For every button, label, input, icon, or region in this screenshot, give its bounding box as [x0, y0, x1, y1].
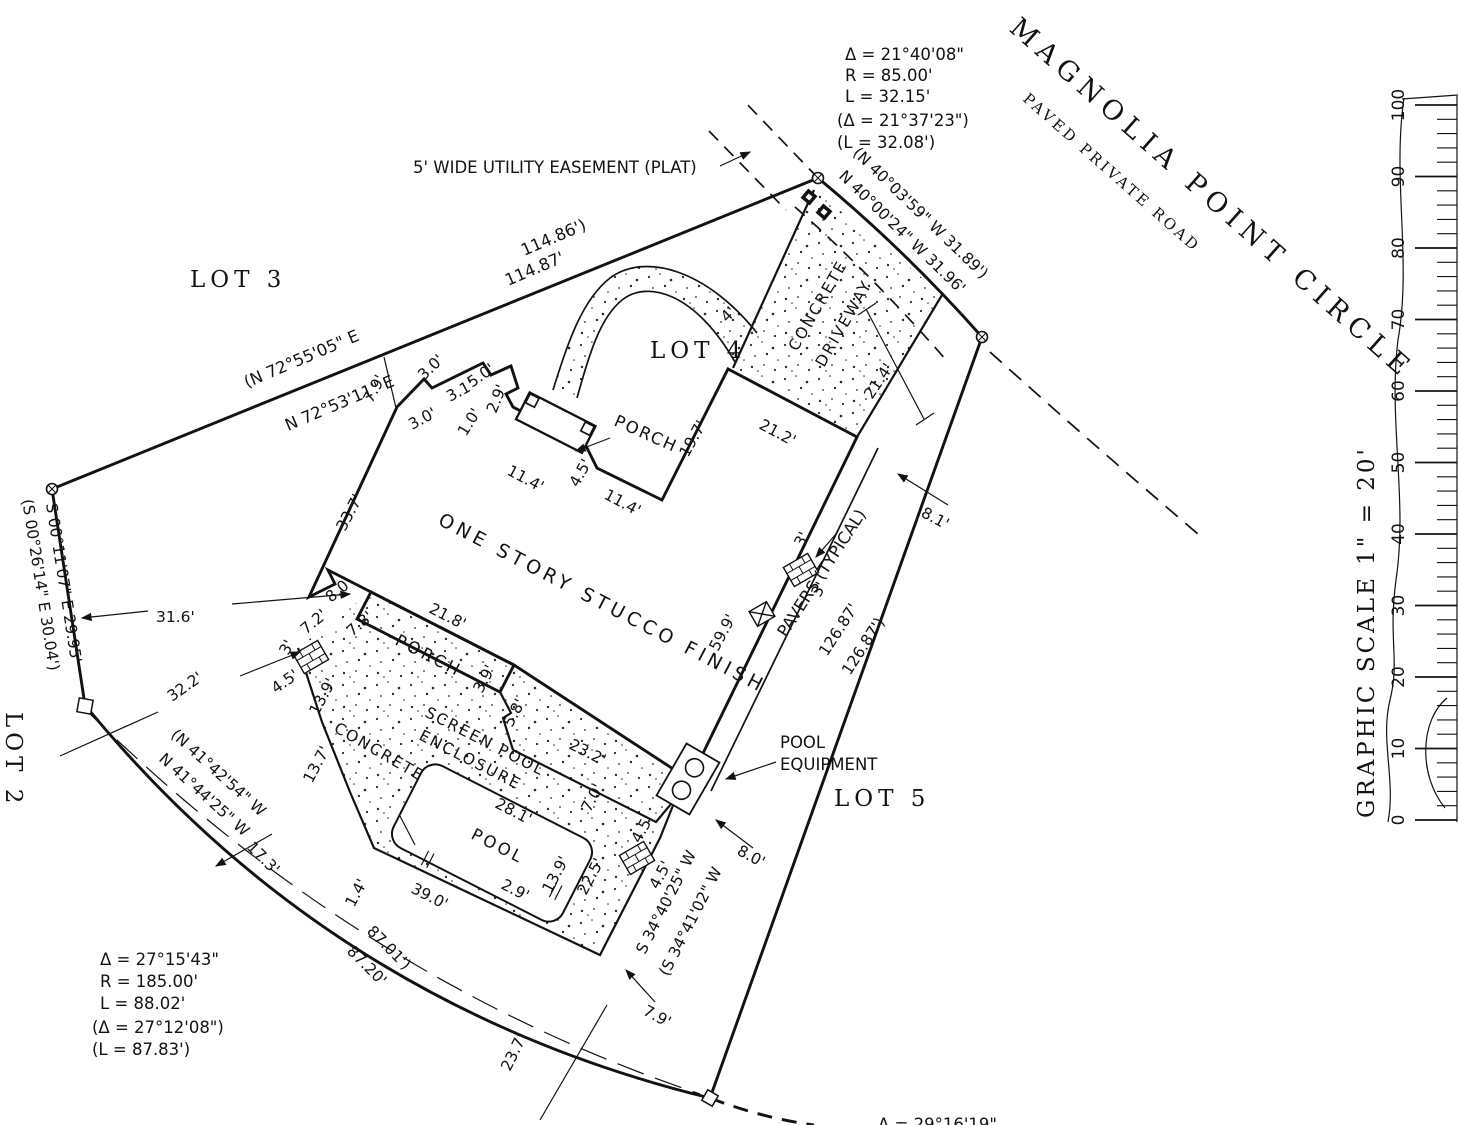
dim-front-a: 11.4' — [504, 462, 547, 496]
entry-porch — [516, 392, 596, 452]
curve-data-bottom: Δ = 27°15'43" R = 185.00' L = 88.02' (Δ … — [92, 950, 224, 1059]
dim-jog-a: 3.0' — [414, 351, 447, 384]
utility-box — [749, 602, 775, 627]
scale-top-cap — [1402, 95, 1458, 99]
curve-bottom-right-delta: Δ = 29°16'19" — [878, 1115, 997, 1125]
dim-pv2-b: 4.5' — [268, 666, 302, 697]
dim-jog-f: 1.0' — [454, 405, 485, 439]
dim-jog-e: 2.9' — [483, 382, 511, 416]
curve-bot-delta-plat: (Δ = 27°12'08") — [92, 1018, 224, 1037]
graphic-scale: 0 10 20 30 40 50 60 70 80 90 100 GRAPHIC… — [1354, 89, 1458, 826]
curve-bot-length-plat: (L = 87.83') — [92, 1040, 190, 1059]
dim-w-b: 32.2' — [164, 668, 206, 705]
dim-jog-c: 3.0' — [405, 404, 439, 433]
scale-tick-30: 30 — [1389, 595, 1409, 617]
scale-tick-100: 100 — [1389, 89, 1409, 121]
curve-top-delta: Δ = 21°40'08" — [845, 45, 964, 64]
monument-square — [702, 1090, 718, 1106]
dim-bottom-gap: 23.7' — [497, 1031, 530, 1074]
dim-walk-gap: 8.1' — [918, 504, 952, 533]
scale-tick-0: 0 — [1389, 815, 1409, 826]
survey-drawing: Δ = 21°40'08" R = 85.00' L = 32.15' (Δ =… — [0, 0, 1460, 1125]
curve-top-length-plat: (L = 32.08') — [837, 133, 935, 152]
scale-tick-90: 90 — [1389, 166, 1409, 188]
scale-ruler-ticks — [1415, 105, 1457, 820]
dim-garage-side: 19.7' — [676, 417, 711, 460]
dim-w-a: 31.6' — [156, 608, 195, 626]
lot2-label: LOT 2 — [0, 712, 26, 808]
dim-front-b: 11.4' — [601, 486, 644, 520]
lot3-label: LOT 3 — [190, 267, 286, 293]
dim-garage-front: 21.2' — [756, 416, 799, 450]
monument-square — [77, 698, 93, 714]
curve-top-delta-plat: (Δ = 21°37'23") — [837, 111, 969, 130]
scale-tick-10: 10 — [1389, 738, 1409, 760]
scale-title: GRAPHIC SCALE 1" = 20' — [1354, 446, 1380, 818]
monument-circle — [977, 332, 988, 343]
pool-equipment-label-1: POOL — [780, 733, 826, 752]
dim-encl-bottom: 39.0' — [408, 880, 451, 914]
scale-tick-80: 80 — [1389, 237, 1409, 259]
bearing-north-plat: (N 72°55'05" E — [241, 326, 362, 392]
pool-equipment-label-2: EQUIPMENT — [780, 755, 878, 774]
dim-se-gap: 8.0' — [734, 842, 768, 871]
dim-se-wall: 59.9' — [706, 611, 740, 654]
scale-tick-60: 60 — [1389, 380, 1409, 402]
scale-tick-50: 50 — [1389, 452, 1409, 474]
easement-label: 5' WIDE UTILITY EASEMENT (PLAT) — [413, 158, 697, 177]
lot5-label: LOT 5 — [834, 786, 930, 812]
monument-circle — [813, 173, 824, 184]
site-plan: Δ = 21°40'08" R = 85.00' L = 32.15' (Δ =… — [0, 0, 1460, 1125]
curve-bot-length: L = 88.02' — [100, 994, 185, 1013]
curve-bot-radius: R = 185.00' — [100, 972, 198, 991]
dim-deck-b: 13.7' — [300, 743, 334, 786]
dim-rear-jog-b: 8.0' — [322, 574, 356, 606]
scale-tick-70: 70 — [1389, 309, 1409, 331]
dim-se-gap2: 7.9' — [640, 1002, 674, 1031]
curve-top-length: L = 32.15' — [845, 87, 930, 106]
curve-top-radius: R = 85.00' — [845, 66, 933, 85]
dim-front-step: 4.5' — [566, 456, 596, 490]
monument-circle — [47, 484, 58, 495]
scale-tick-40: 40 — [1389, 523, 1409, 545]
entry-porch-label: PORCH — [611, 411, 680, 456]
road-name: MAGNOLIA POINT CIRCLE — [1003, 12, 1420, 386]
dim-sw-wall: 33.7' — [333, 491, 367, 534]
lot4-label: LOT 4 — [650, 338, 746, 364]
curve-data-top: Δ = 21°40'08" R = 85.00' L = 32.15' (Δ =… — [837, 45, 969, 152]
dim-pool-step: 1.4' — [342, 876, 371, 910]
curve-bot-delta: Δ = 27°15'43" — [100, 950, 219, 969]
scale-tick-20: 20 — [1389, 666, 1409, 688]
